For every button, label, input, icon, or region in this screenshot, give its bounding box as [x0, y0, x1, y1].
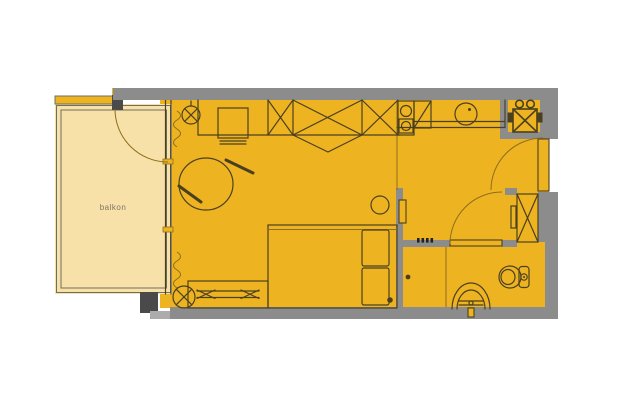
wall-top	[113, 88, 558, 100]
wall-stub	[505, 188, 517, 195]
wall-bath-right	[502, 240, 517, 247]
floor-areas	[55, 100, 549, 308]
basin-drain	[468, 308, 474, 317]
wall-step	[150, 311, 170, 319]
floor-plan-drawing: balkon	[0, 0, 633, 413]
wall-right-lower	[545, 192, 558, 319]
wall-bottom	[170, 307, 558, 319]
bedside-lamp-icon	[387, 297, 393, 303]
shower-valve-icon	[406, 275, 411, 280]
balcony-floor	[55, 104, 172, 294]
wall-niche-bottom	[508, 132, 540, 139]
wall-mirror-symbol	[399, 200, 406, 223]
wall-niche-left	[500, 100, 508, 139]
wall-right-upper	[540, 100, 558, 139]
balcony-label: balkon	[100, 203, 127, 212]
window-frame-tick	[163, 227, 173, 232]
balcony-divider-wall	[55, 96, 113, 104]
wall-pillar-bottom	[140, 292, 158, 313]
floor-plan: balkon	[0, 0, 633, 413]
wall-closet-side	[538, 192, 545, 242]
